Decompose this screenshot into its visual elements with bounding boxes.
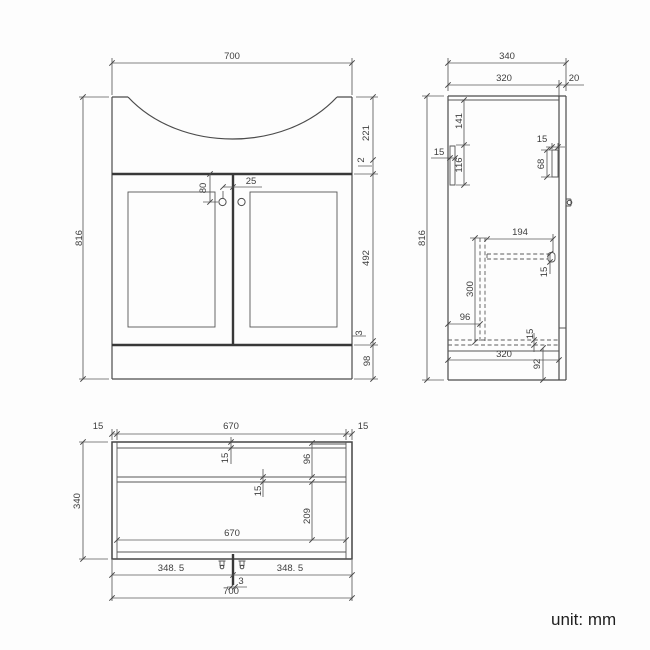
front-door-panel-right	[250, 192, 337, 327]
side-body-outline	[448, 96, 566, 380]
dim-label-shelf-thickness: 15	[539, 267, 550, 278]
dim-label-plan-left-wall: 15	[93, 421, 104, 432]
front-view: 700 816 221 2 492 3 98 80 25	[74, 51, 378, 382]
front-door-panel-left	[128, 192, 215, 327]
front-view-outline	[112, 97, 352, 379]
dim-label-front-rail-thickness: 15	[537, 134, 548, 145]
front-dim-width	[112, 58, 352, 95]
dim-label-plan-front-depth: 209	[302, 508, 313, 524]
front-door-knob-left	[219, 198, 226, 205]
dim-label-plan-back-rail-depth: 96	[302, 454, 313, 465]
dim-label-side-depth: 340	[499, 51, 515, 62]
side-bottom-panel-hidden	[448, 340, 559, 345]
dim-label-door-thickness: 20	[569, 73, 580, 84]
dim-label-bottom-gap: 3	[354, 330, 365, 335]
unit-note: unit: mm	[551, 610, 616, 629]
dim-label-plinth-height: 98	[362, 356, 373, 367]
side-dim-carcass-door	[448, 80, 584, 96]
dim-label-rail-drop: 141	[454, 113, 465, 129]
dim-label-rail-height: 116	[454, 157, 465, 172]
dim-label-plinth-depth: 320	[496, 349, 512, 360]
dim-label-carcass-depth: 320	[496, 73, 512, 84]
side-back-panel-hidden	[480, 238, 485, 342]
dim-label-plan-inner-width-front: 670	[224, 528, 240, 539]
plan-view-outline	[112, 442, 352, 585]
dim-label-plan-depth: 340	[72, 493, 83, 509]
technical-drawing-page: 700 816 221 2 492 3 98 80 25	[0, 0, 650, 650]
dim-label-handle-drop: 80	[198, 183, 209, 194]
dim-label-shelf-depth: 194	[512, 227, 528, 238]
dim-label-plan-inner-width: 670	[223, 421, 239, 432]
dim-label-plan-right-wall: 15	[358, 421, 369, 432]
side-hanging-rail-front	[552, 150, 558, 177]
dim-label-countertop-lip: 2	[356, 157, 367, 162]
dim-label-back-panel-height: 300	[465, 281, 476, 297]
plan-view: 15 670 15 340 15 96 15 209 670 348. 5 34…	[72, 421, 368, 601]
dim-label-side-height: 816	[417, 230, 428, 246]
dim-label-plan-back-thickness: 15	[220, 453, 231, 464]
dim-label-back-panel-offset: 96	[460, 312, 471, 323]
plan-body-outline	[112, 442, 352, 559]
vanity-unit-dimension-drawing: 700 816 221 2 492 3 98 80 25	[0, 0, 650, 650]
dim-label-plan-door-left: 348. 5	[158, 563, 184, 574]
dim-label-plan-door-right: 348. 5	[277, 563, 303, 574]
dim-label-side-plinth-height: 92	[532, 359, 543, 370]
dim-label-handle-offset: 25	[246, 176, 257, 187]
plan-dim-depth	[79, 442, 108, 559]
dim-label-front-height: 816	[74, 230, 85, 246]
dim-label-bottom-thickness: 15	[525, 329, 536, 340]
side-shelf-hidden	[487, 254, 548, 259]
dim-label-basin-height: 221	[361, 125, 372, 141]
side-view: 340 320 20 141 116 15 15 68 816 194 15 3…	[417, 51, 584, 383]
front-door-knob-right	[238, 198, 245, 205]
side-bottom-line	[448, 328, 566, 351]
dim-label-front-rail-height: 68	[536, 159, 547, 170]
dim-label-plan-center-gap: 3	[238, 576, 243, 587]
front-dim-handle-offset	[223, 187, 262, 199]
dim-label-plan-shelf-thickness: 15	[253, 486, 264, 497]
dim-label-front-width: 700	[224, 51, 240, 62]
front-view-dimensions: 700 816 221 2 492 3 98 80 25	[74, 51, 378, 382]
dim-label-door-height: 492	[361, 250, 372, 266]
front-basin-curve	[128, 97, 337, 139]
dim-label-rail-thickness: 15	[434, 147, 445, 158]
